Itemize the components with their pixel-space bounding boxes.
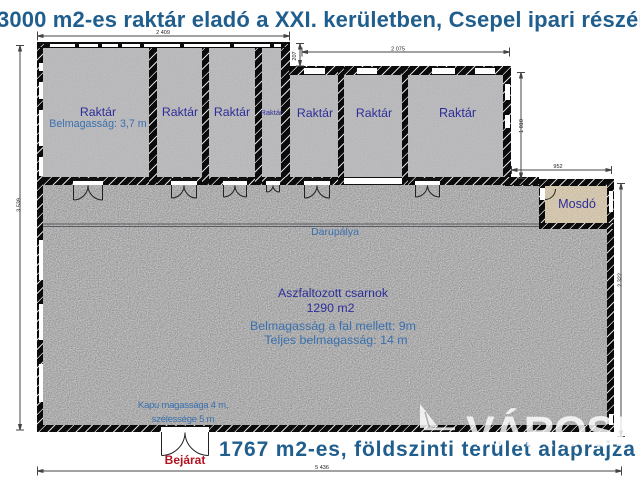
svg-text:5 436: 5 436 — [315, 465, 329, 471]
svg-text:952: 952 — [553, 164, 562, 170]
svg-text:VÁROSI: VÁROSI — [466, 408, 625, 456]
svg-text:3 539: 3 539 — [17, 198, 23, 212]
svg-text:207: 207 — [292, 51, 298, 60]
svg-text:1 010: 1 010 — [519, 119, 525, 133]
svg-text:2 322: 2 322 — [618, 273, 624, 287]
svg-text:2 075: 2 075 — [391, 47, 405, 53]
svg-text:2 409: 2 409 — [156, 30, 170, 36]
